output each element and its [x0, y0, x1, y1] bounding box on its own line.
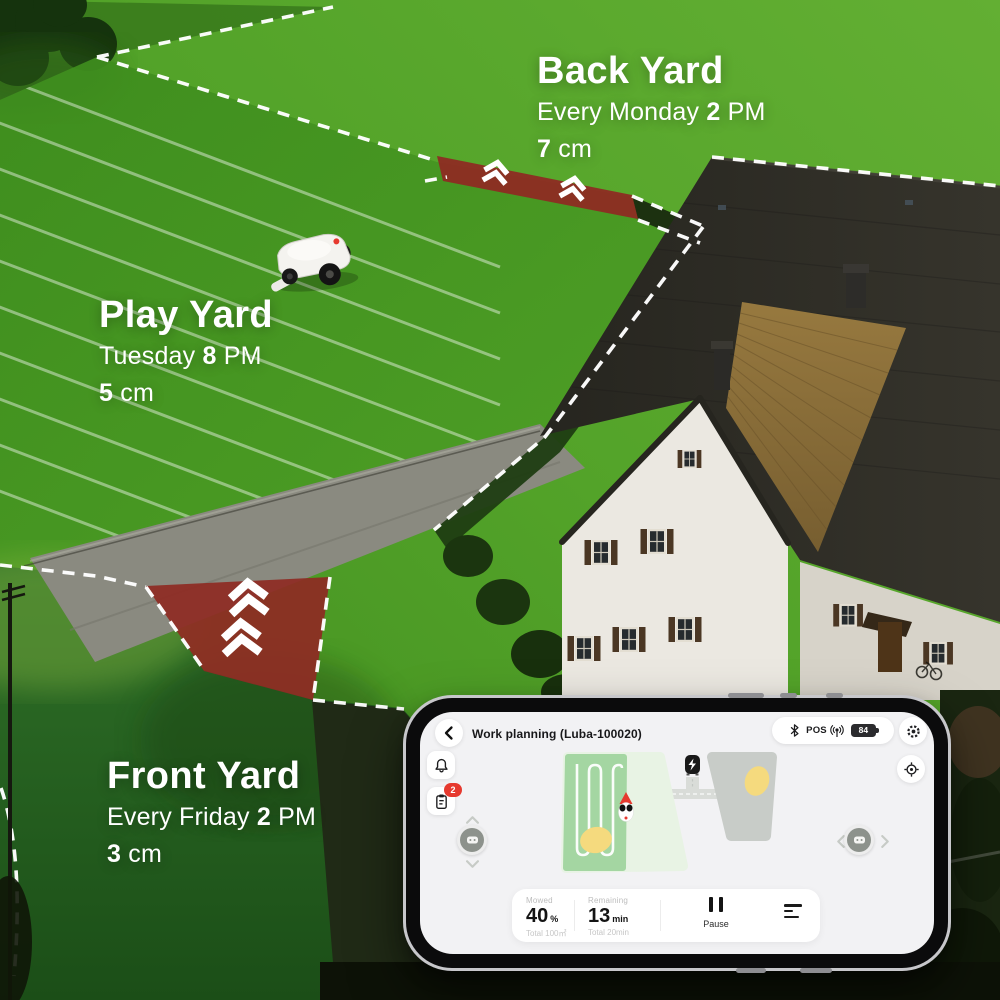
zone-schedule: Every Monday 2 PM — [537, 99, 766, 127]
mower-icon — [460, 828, 484, 852]
remaining-unit: min — [612, 914, 628, 924]
house-door — [878, 622, 902, 672]
phone-side-button — [800, 968, 832, 973]
zone-schedule: Tuesday 8 PM — [99, 343, 273, 371]
zone-label-play-yard: Play Yard Tuesday 8 PM 5 cm — [99, 296, 273, 407]
zone-title: Front Yard — [107, 757, 316, 795]
antenna-signal-icon — [830, 724, 844, 738]
task-menu-button[interactable] — [784, 904, 802, 918]
phone-side-button — [780, 693, 797, 698]
carousel-down-button[interactable] — [465, 859, 479, 868]
remaining-total: Total 20min — [588, 928, 629, 937]
job-stats-card: Mowed 40% Total 100㎡ Remaining 13min Tot… — [512, 889, 820, 942]
back-button[interactable] — [435, 719, 463, 747]
marketing-scene: Back Yard Every Monday 2 PM 7 cm Play Ya… — [0, 0, 1000, 1000]
phone-mockup: Work planning (Luba-100020) POS 84 — [406, 698, 948, 968]
phone-frame: Work planning (Luba-100020) POS 84 — [406, 698, 948, 968]
zone-title: Play Yard — [99, 296, 273, 334]
mowed-label: Mowed — [526, 896, 566, 905]
chevron-left-icon — [443, 725, 455, 741]
rtk-pos-label: POS — [806, 725, 827, 736]
bluetooth-icon — [790, 724, 799, 737]
mower-icon — [847, 828, 871, 852]
mowed-total: Total 100㎡ — [526, 928, 566, 939]
pause-button[interactable]: Pause — [693, 897, 739, 929]
divider — [574, 900, 575, 931]
battery-percent: 84 — [859, 726, 868, 735]
work-map[interactable] — [556, 748, 796, 878]
robot-selector-right[interactable] — [844, 825, 874, 855]
zone-cut-height: 7 cm — [537, 136, 766, 164]
phone-side-button — [826, 693, 843, 698]
carousel-up-button[interactable] — [465, 815, 479, 824]
notifications-button[interactable] — [427, 751, 455, 779]
gear-icon — [905, 723, 922, 740]
zone-cut-height: 3 cm — [107, 841, 316, 869]
zone-schedule: Every Friday 2 PM — [107, 804, 316, 832]
pause-label: Pause — [693, 919, 739, 929]
battery-icon: 84 — [851, 724, 876, 737]
phone-side-button — [728, 693, 764, 698]
tasks-count-badge: 2 — [444, 783, 462, 797]
crosshair-target-icon — [903, 761, 920, 778]
map-canvas — [556, 748, 796, 878]
locate-button[interactable] — [897, 755, 925, 783]
list-icon — [784, 904, 802, 907]
robot-selector-left[interactable] — [457, 825, 487, 855]
divider — [660, 900, 661, 931]
page-title: Work planning (Luba-100020) — [472, 727, 642, 741]
chevron-down-icon — [466, 860, 479, 868]
zone-label-back-yard: Back Yard Every Monday 2 PM 7 cm — [537, 52, 766, 163]
remaining-value: 13 — [588, 906, 610, 926]
phone-side-button — [736, 968, 766, 973]
charging-station-icon — [685, 755, 700, 776]
zone-cut-height: 5 cm — [99, 380, 273, 408]
zone-title: Back Yard — [537, 52, 766, 90]
settings-button[interactable] — [899, 717, 927, 745]
mowed-stat: Mowed 40% Total 100㎡ — [526, 896, 566, 939]
carousel-right-button[interactable] — [878, 837, 892, 846]
bell-icon — [433, 757, 450, 774]
pause-icon — [709, 897, 723, 912]
chevron-right-icon — [881, 835, 889, 848]
device-status-pill[interactable]: POS 84 — [772, 717, 894, 744]
app-screen: Work planning (Luba-100020) POS 84 — [420, 712, 934, 954]
remaining-label: Remaining — [588, 896, 629, 905]
chevron-up-icon — [466, 816, 479, 824]
mowed-value: 40 — [526, 906, 548, 926]
mowed-unit: % — [550, 914, 558, 924]
zone-label-front-yard: Front Yard Every Friday 2 PM 3 cm — [107, 757, 316, 868]
remaining-stat: Remaining 13min Total 20min — [588, 896, 629, 937]
